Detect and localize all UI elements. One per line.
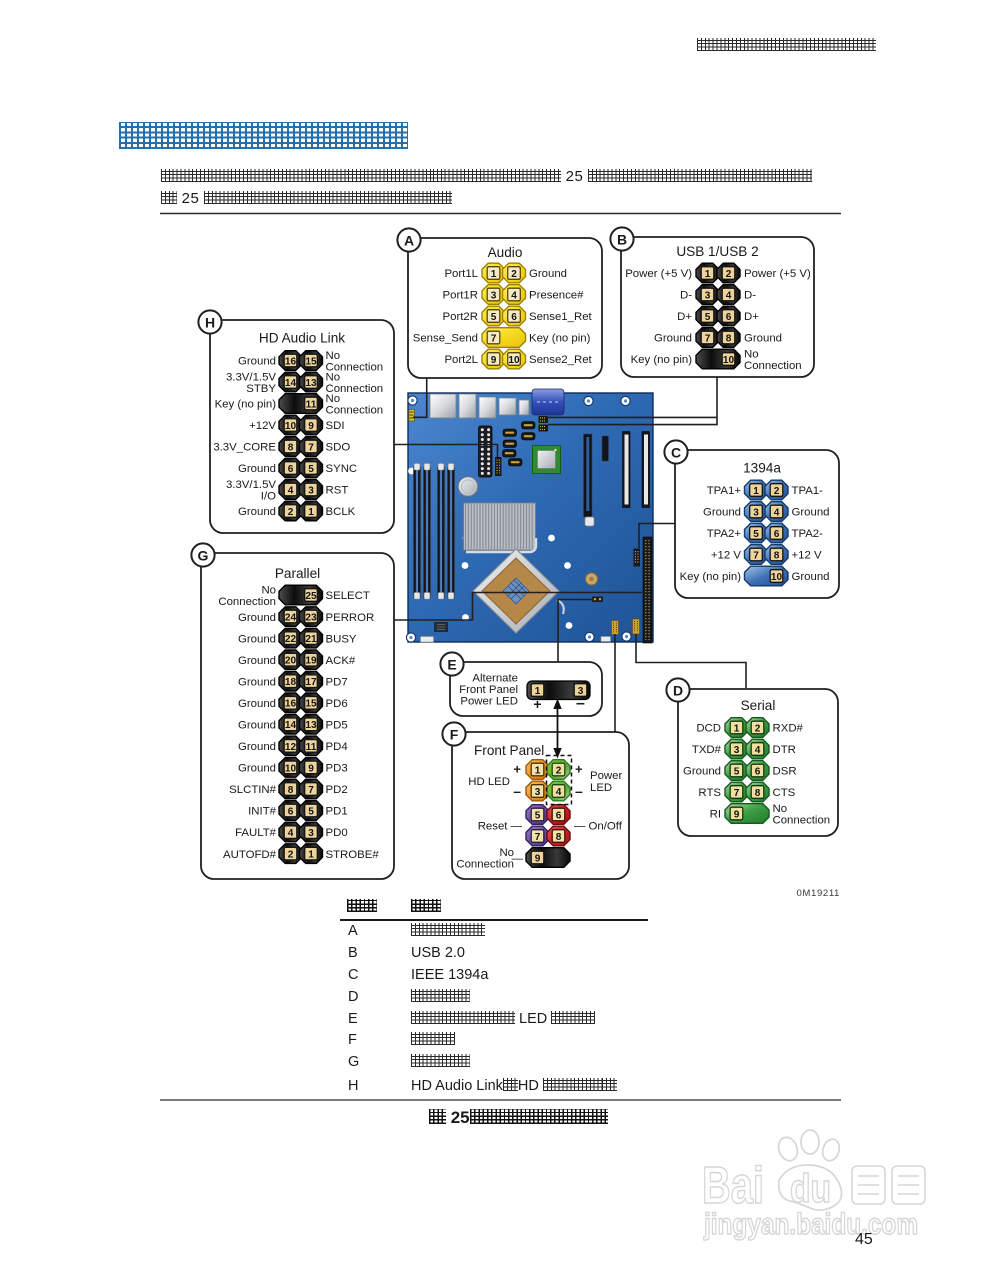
svg-text:4: 4 [774,507,780,518]
svg-text:Ground: Ground [529,268,567,280]
svg-text:Ground: Ground [238,763,276,775]
svg-text:Connection: Connection [326,405,384,417]
svg-text:—: — [512,853,524,865]
svg-text:Port2L: Port2L [444,354,478,366]
svg-text:Key (no pin): Key (no pin) [529,333,591,345]
svg-text:No: No [326,350,341,362]
svg-text:6: 6 [288,806,294,817]
svg-text:12: 12 [285,742,297,753]
svg-text:B: B [617,231,627,247]
svg-text:Ground: Ground [238,506,276,518]
svg-text:16: 16 [285,356,297,367]
svg-text:21: 21 [305,634,317,645]
svg-text:+12V: +12V [249,420,276,432]
svg-text:13: 13 [305,720,317,731]
svg-text:5: 5 [734,766,740,777]
svg-text:3: 3 [491,290,497,301]
svg-text:Ground: Ground [238,612,276,624]
svg-text:Connection: Connection [744,360,802,372]
svg-text:4: 4 [726,290,732,301]
svg-text:8: 8 [755,788,761,799]
svg-text:1: 1 [308,850,314,861]
svg-text:10: 10 [508,355,520,366]
svg-text:No: No [326,372,341,384]
svg-text:USB 1/USB 2: USB 1/USB 2 [676,244,758,259]
svg-text:FAULT#: FAULT# [235,827,277,839]
svg-text:6: 6 [511,312,517,323]
svg-text:7: 7 [753,550,759,561]
svg-text:Power LED: Power LED [460,696,518,708]
svg-text:DCD: DCD [696,723,721,735]
svg-text:6: 6 [288,464,294,475]
svg-text:7: 7 [535,832,541,843]
svg-text:No: No [326,393,341,405]
svg-text:3: 3 [734,745,740,756]
svg-text:14: 14 [285,378,297,389]
svg-text:Ground: Ground [238,741,276,753]
svg-text:7: 7 [705,333,711,344]
svg-text:9: 9 [734,809,740,820]
svg-text:6: 6 [774,529,780,540]
svg-text:16: 16 [285,699,297,710]
svg-text:PD1: PD1 [326,806,348,818]
svg-text:Power (+5 V): Power (+5 V) [625,268,692,280]
svg-text:2: 2 [726,269,732,280]
svg-text:20: 20 [285,656,297,667]
svg-text:AUTOFD#: AUTOFD# [223,849,277,861]
svg-text:4: 4 [511,290,517,301]
svg-text:2: 2 [288,507,294,518]
svg-text:Audio: Audio [488,245,523,260]
svg-text:4: 4 [755,745,761,756]
svg-text:7: 7 [308,785,314,796]
svg-text:1: 1 [753,486,759,497]
svg-text:TPA2+: TPA2+ [707,528,742,540]
svg-text:No: No [261,585,276,597]
svg-text:D: D [673,682,683,698]
svg-text:7: 7 [734,788,740,799]
svg-text:2: 2 [556,765,562,776]
svg-text:TXD#: TXD# [692,744,722,756]
svg-text:9: 9 [491,355,497,366]
svg-text:Ground: Ground [238,698,276,710]
svg-text:E: E [447,656,456,672]
svg-text:24: 24 [285,612,297,623]
svg-text:ACK#: ACK# [326,655,356,667]
svg-text:I/O: I/O [261,491,276,503]
svg-text:+12 V: +12 V [792,550,822,562]
svg-text:3.3V_CORE: 3.3V_CORE [213,442,276,454]
svg-text:Ground: Ground [654,333,692,345]
svg-text:RI: RI [710,809,721,821]
svg-text:Key (no pin): Key (no pin) [631,354,693,366]
svg-text:TPA2-: TPA2- [792,528,824,540]
svg-text:Port1L: Port1L [444,268,478,280]
svg-text:3: 3 [535,787,541,798]
svg-text:Sense1_Ret: Sense1_Ret [529,311,593,323]
svg-text:–: – [575,783,583,799]
svg-text:Connection: Connection [218,596,276,608]
svg-text:–: – [513,783,521,799]
svg-text:Reset —: Reset — [478,821,523,833]
svg-text:1394a: 1394a [743,461,781,476]
svg-text:SLCTIN#: SLCTIN# [229,784,277,796]
svg-text:Bai: Bai [702,1157,764,1215]
svg-text:10: 10 [285,763,297,774]
svg-text:3: 3 [308,828,314,839]
svg-text:RST: RST [326,485,349,497]
svg-text:+: + [575,762,583,777]
svg-text:0M19211: 0M19211 [797,888,841,899]
svg-text:RXD#: RXD# [773,723,804,735]
svg-text:5: 5 [705,312,711,323]
svg-text:1: 1 [705,269,711,280]
svg-text:Ground: Ground [744,333,782,345]
svg-text:LED: LED [590,782,612,794]
svg-text:1: 1 [308,507,314,518]
svg-text:D-: D- [680,290,692,302]
svg-text:19: 19 [305,656,317,667]
svg-text:A: A [404,232,414,248]
svg-text:Ground: Ground [238,720,276,732]
svg-text:Ground: Ground [703,507,741,519]
svg-text:CTS: CTS [773,787,796,799]
svg-text:+: + [533,696,541,712]
svg-text:Ground: Ground [792,507,830,519]
svg-text:1: 1 [491,269,497,280]
svg-text:D+: D+ [744,311,759,323]
svg-text:Key (no pin): Key (no pin) [680,571,742,583]
svg-text:9: 9 [535,853,541,864]
svg-text:TPA1-: TPA1- [792,485,824,497]
svg-text:8: 8 [288,442,294,453]
svg-text:Parallel: Parallel [275,566,320,581]
svg-text:3.3V/1.5V: 3.3V/1.5V [226,479,276,491]
svg-text:23: 23 [305,612,317,623]
svg-text:SDO: SDO [326,442,351,454]
svg-text:10: 10 [723,355,735,366]
svg-text:C: C [671,444,681,460]
svg-text:15: 15 [305,699,317,710]
svg-text:6: 6 [556,810,562,821]
svg-text:22: 22 [285,634,297,645]
svg-text:11: 11 [306,399,317,410]
svg-text:2: 2 [755,723,761,734]
svg-text:BUSY: BUSY [326,633,357,645]
svg-text:Presence#: Presence# [529,290,584,302]
svg-text:SELECT: SELECT [326,590,370,602]
svg-text:Port1R: Port1R [443,290,478,302]
svg-text:PD5: PD5 [326,720,348,732]
svg-text:2: 2 [288,850,294,861]
svg-text:5: 5 [308,806,314,817]
svg-text:Front Panel: Front Panel [474,743,544,758]
svg-text:6: 6 [755,766,761,777]
svg-text:5: 5 [491,312,497,323]
svg-text:10: 10 [771,572,783,583]
svg-text:H: H [205,314,215,330]
svg-text:17: 17 [305,677,317,688]
svg-text:+: + [513,762,521,777]
svg-text:PERROR: PERROR [326,612,375,624]
svg-text:No: No [773,803,788,815]
svg-text:9: 9 [308,421,314,432]
svg-text:15: 15 [305,356,317,367]
svg-text:8: 8 [288,785,294,796]
svg-text:3: 3 [308,485,314,496]
svg-text:2: 2 [511,269,517,280]
svg-text:7: 7 [491,333,497,344]
svg-text:DSR: DSR [773,766,797,778]
svg-text:du: du [790,1167,831,1211]
svg-text:RTS: RTS [698,787,721,799]
svg-text:6: 6 [726,312,732,323]
svg-text:Ground: Ground [683,766,721,778]
svg-text:Port2R: Port2R [443,311,478,323]
svg-text:5: 5 [753,529,759,540]
svg-text:4: 4 [556,787,562,798]
svg-text:1: 1 [535,765,541,776]
svg-text:Power (+5 V): Power (+5 V) [744,268,811,280]
svg-text:DTR: DTR [773,744,796,756]
svg-text:Ground: Ground [238,463,276,475]
svg-text:PD2: PD2 [326,784,348,796]
svg-text:4: 4 [288,485,294,496]
svg-text:D-: D- [744,290,756,302]
svg-text:Ground: Ground [792,571,830,583]
svg-text:5: 5 [535,810,541,821]
svg-text:3.3V/1.5V: 3.3V/1.5V [226,372,276,384]
svg-text:SYNC: SYNC [326,463,358,475]
svg-text:Front Panel: Front Panel [459,684,518,696]
svg-text:Key (no pin): Key (no pin) [215,399,277,411]
svg-text:Ground: Ground [238,633,276,645]
svg-text:Ground: Ground [238,356,276,368]
svg-text:No: No [744,349,759,361]
svg-text:INIT#: INIT# [248,806,277,818]
svg-text:14: 14 [285,720,297,731]
svg-text:1: 1 [734,723,740,734]
svg-text:TPA1+: TPA1+ [707,485,742,497]
svg-text:BCLK: BCLK [326,506,356,518]
svg-text:HD LED: HD LED [468,776,510,788]
svg-text:HD Audio Link: HD Audio Link [259,331,345,346]
svg-text:5: 5 [308,464,314,475]
svg-text:PD0: PD0 [326,827,348,839]
svg-text:18: 18 [285,677,297,688]
svg-text:+12 V: +12 V [711,550,741,562]
svg-text:3: 3 [705,290,711,301]
svg-text:Sense_Send: Sense_Send [413,333,478,345]
svg-text:STROBE#: STROBE# [326,849,380,861]
svg-text:8: 8 [556,832,562,843]
svg-text:10: 10 [285,421,297,432]
svg-text:Connection: Connection [773,815,831,827]
svg-text:25: 25 [305,591,317,602]
svg-text:8: 8 [774,550,780,561]
svg-text:13: 13 [305,378,317,389]
svg-text:PD7: PD7 [326,676,348,688]
svg-text:4: 4 [288,828,294,839]
svg-text:9: 9 [308,763,314,774]
svg-text:11: 11 [306,742,317,753]
svg-text:Power: Power [590,770,622,782]
svg-text:PD3: PD3 [326,763,348,775]
svg-text:–: – [576,695,585,712]
svg-text:Ground: Ground [238,655,276,667]
svg-text:3: 3 [753,507,759,518]
svg-text:PD4: PD4 [326,741,348,753]
svg-text:Ground: Ground [238,676,276,688]
svg-text:D+: D+ [677,311,692,323]
svg-text:jingyan.baidu.com: jingyan.baidu.com [703,1208,918,1241]
svg-text:SDI: SDI [326,420,345,432]
svg-text:Serial: Serial [741,698,776,713]
svg-text:Sense2_Ret: Sense2_Ret [529,354,593,366]
svg-text:Connection: Connection [456,859,514,871]
svg-text:PD6: PD6 [326,698,348,710]
svg-text:2: 2 [774,486,780,497]
svg-text:7: 7 [308,442,314,453]
svg-text:G: G [198,547,209,563]
svg-text:STBY: STBY [246,383,276,395]
svg-text:Alternate: Alternate [472,673,518,685]
svg-text:F: F [450,726,459,742]
svg-text:8: 8 [726,333,732,344]
svg-text:— On/Off: — On/Off [574,821,623,833]
